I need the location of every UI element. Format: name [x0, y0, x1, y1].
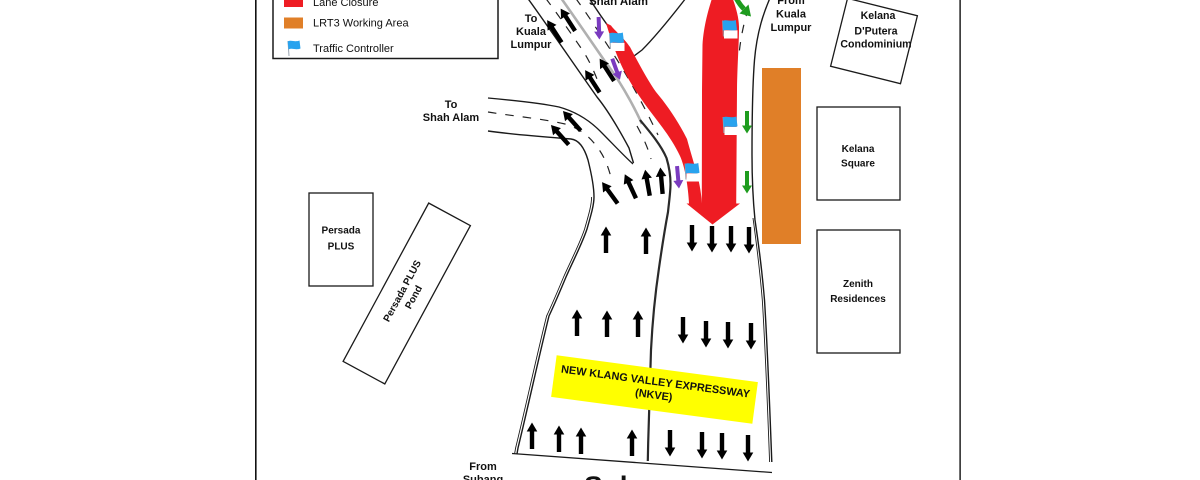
svg-text:Shah Alam: Shah Alam: [589, 0, 648, 8]
svg-text:Lumpur: Lumpur: [511, 39, 553, 51]
svg-text:From: From: [469, 461, 497, 473]
svg-text:LRT3 Working Area: LRT3 Working Area: [313, 18, 409, 30]
svg-text:From: From: [777, 0, 805, 7]
svg-text:Kuala: Kuala: [776, 9, 807, 21]
svg-text:Shah Alam: Shah Alam: [423, 112, 480, 124]
svg-text:PLUS: PLUS: [328, 242, 355, 253]
svg-text:Square: Square: [841, 159, 875, 170]
svg-text:Kelana: Kelana: [861, 10, 896, 22]
svg-text:To: To: [525, 13, 538, 25]
svg-text:Subang: Subang: [584, 471, 687, 480]
svg-text:Condominium: Condominium: [840, 39, 911, 51]
svg-text:Kelana: Kelana: [842, 144, 875, 155]
svg-text:Traffic Controller: Traffic Controller: [313, 43, 394, 55]
svg-text:Subang: Subang: [463, 474, 503, 480]
svg-text:Zenith: Zenith: [843, 279, 873, 290]
svg-text:Lumpur: Lumpur: [771, 22, 813, 34]
svg-text:Kuala: Kuala: [516, 26, 547, 38]
svg-text:D'Putera: D'Putera: [854, 26, 897, 38]
svg-text:To: To: [445, 99, 458, 111]
svg-text:Lane Closure: Lane Closure: [313, 0, 378, 9]
svg-text:Residences: Residences: [830, 294, 886, 305]
svg-text:Persada: Persada: [322, 226, 361, 237]
